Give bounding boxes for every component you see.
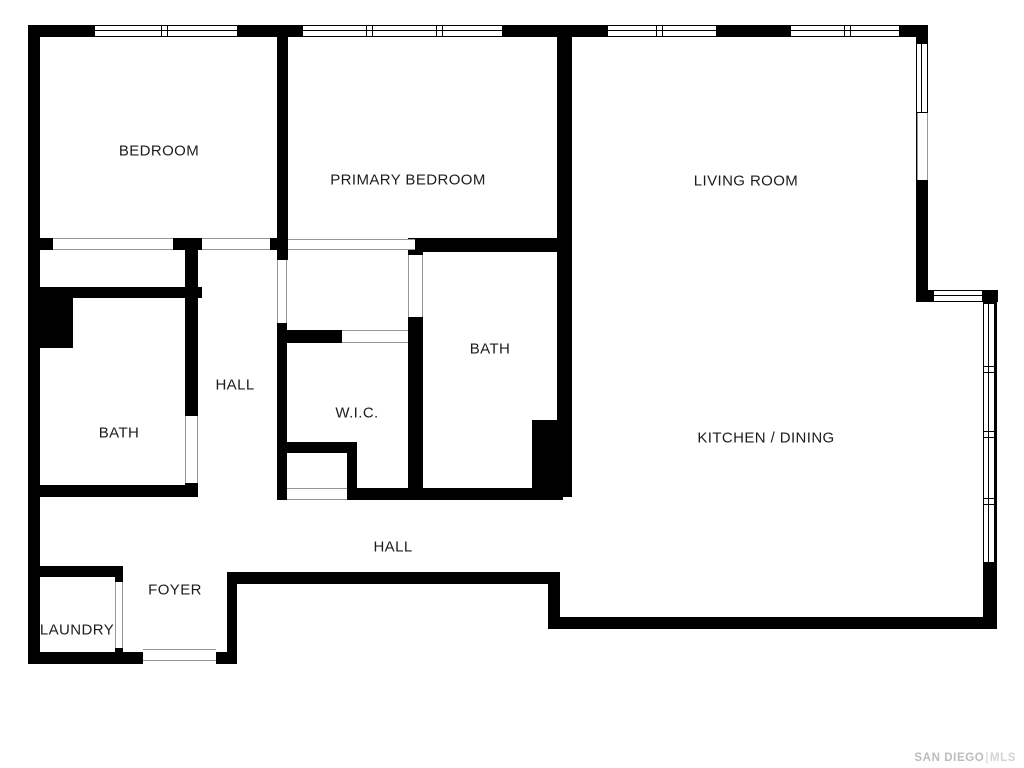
window-mullion <box>984 498 994 499</box>
door-opening <box>287 488 347 500</box>
room-label-foyer: FOYER <box>148 582 202 599</box>
door-opening <box>277 260 287 323</box>
window-mullion <box>372 26 373 36</box>
watermark-brand: SAN DIEGO <box>914 752 984 764</box>
window <box>94 25 238 37</box>
wall <box>227 572 560 584</box>
room-label-living-room: LIVING ROOM <box>694 173 798 190</box>
wall <box>216 652 237 664</box>
window-mullion <box>984 431 994 432</box>
window-mullion <box>436 26 437 36</box>
window <box>302 25 503 37</box>
room-label-bath-left: BATH <box>99 425 140 442</box>
floor-plan: SAN DIEGO|MLS BEDROOMPRIMARY BEDROOMLIVI… <box>0 0 1024 768</box>
window-mullion <box>656 26 657 36</box>
window <box>933 290 983 302</box>
window <box>916 43 928 113</box>
window-mullion <box>442 26 443 36</box>
window-mullion <box>167 26 168 36</box>
watermark-suffix: MLS <box>990 752 1016 764</box>
wall <box>28 287 73 348</box>
wall <box>532 420 557 497</box>
wall <box>277 25 288 260</box>
room-label-bedroom: BEDROOM <box>119 143 199 160</box>
wall <box>185 250 198 416</box>
wall <box>548 617 997 629</box>
wall <box>277 323 287 498</box>
window <box>607 25 717 37</box>
window-mullion <box>161 26 162 36</box>
window-mullion <box>850 26 851 36</box>
wall <box>227 572 237 664</box>
door-opening <box>408 255 423 317</box>
room-label-bath-middle: BATH <box>470 341 511 358</box>
window-mullion <box>662 26 663 36</box>
room-label-wic: W.I.C. <box>335 405 378 422</box>
window <box>790 25 900 37</box>
mls-watermark: SAN DIEGO|MLS <box>914 752 1016 764</box>
room-label-hall-lower: HALL <box>373 539 412 556</box>
wall <box>557 25 572 497</box>
door-opening <box>288 239 415 250</box>
window <box>983 303 995 563</box>
window-mullion <box>984 504 994 505</box>
window-mullion <box>366 26 367 36</box>
door-opening <box>342 330 408 343</box>
wall <box>28 566 123 577</box>
door-opening <box>143 649 216 661</box>
window-mullion <box>984 372 994 373</box>
window-mullion <box>844 26 845 36</box>
door-opening <box>202 238 270 250</box>
door-opening <box>917 113 928 180</box>
room-label-kitchen-dining: KITCHEN / DINING <box>697 430 834 447</box>
window-mullion <box>984 366 994 367</box>
door-opening <box>185 416 198 483</box>
room-label-primary-bedroom: PRIMARY BEDROOM <box>330 172 485 189</box>
window-mullion <box>984 437 994 438</box>
wall <box>415 238 570 252</box>
door-opening <box>53 238 173 250</box>
room-label-laundry: LAUNDRY <box>40 622 114 639</box>
wall <box>28 485 198 497</box>
door-opening <box>115 582 123 648</box>
room-label-hall-upper: HALL <box>215 377 254 394</box>
wall <box>28 652 143 664</box>
